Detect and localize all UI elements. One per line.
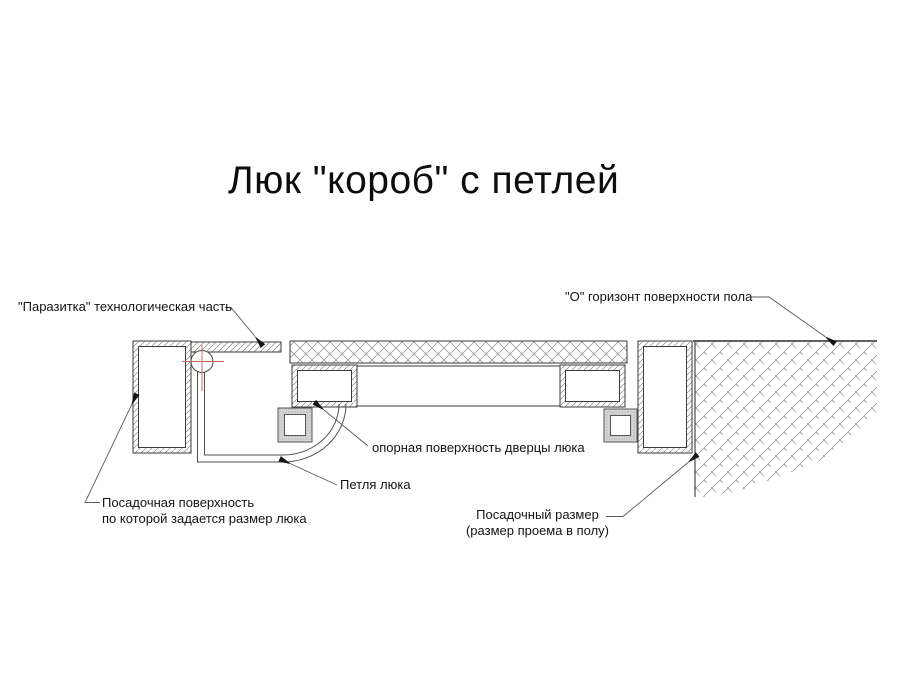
floor-slab-section [693,341,877,498]
label-seating-size: Посадочный размер (размер проема в полу) [455,507,620,539]
door-leaf [292,365,625,407]
label-parasitka: "Паразитка" технологическая часть [18,299,232,315]
label-seating-surface: Посадочная поверхность по которой задает… [102,495,307,527]
label-seating-surface-line2: по которой задается размер люка [102,511,307,527]
label-hinge: Петля люка [340,477,411,493]
door-covering-strip [290,341,627,363]
label-seating-size-line2: (размер проема в полу) [455,523,620,539]
leader-door-support [324,410,368,446]
label-door-support: опорная поверхность дверцы люка [372,440,585,456]
label-floor-horizon: "О" горизонт поверхности пола [565,289,752,305]
technical-drawing [0,0,900,700]
leader-seating-surface [85,405,132,503]
leader-floor-horizon [750,297,825,337]
label-seating-size-line1: Посадочный размер [455,507,620,523]
drawing-page: Люк "короб" с петлей [0,0,900,700]
seal-profile-left [278,408,312,442]
right-frame-profile [638,341,692,453]
label-seating-surface-line1: Посадочная поверхность [102,495,307,511]
left-frame-profile [133,341,191,453]
seal-profile-right [604,409,637,442]
leader-hinge [291,464,337,485]
